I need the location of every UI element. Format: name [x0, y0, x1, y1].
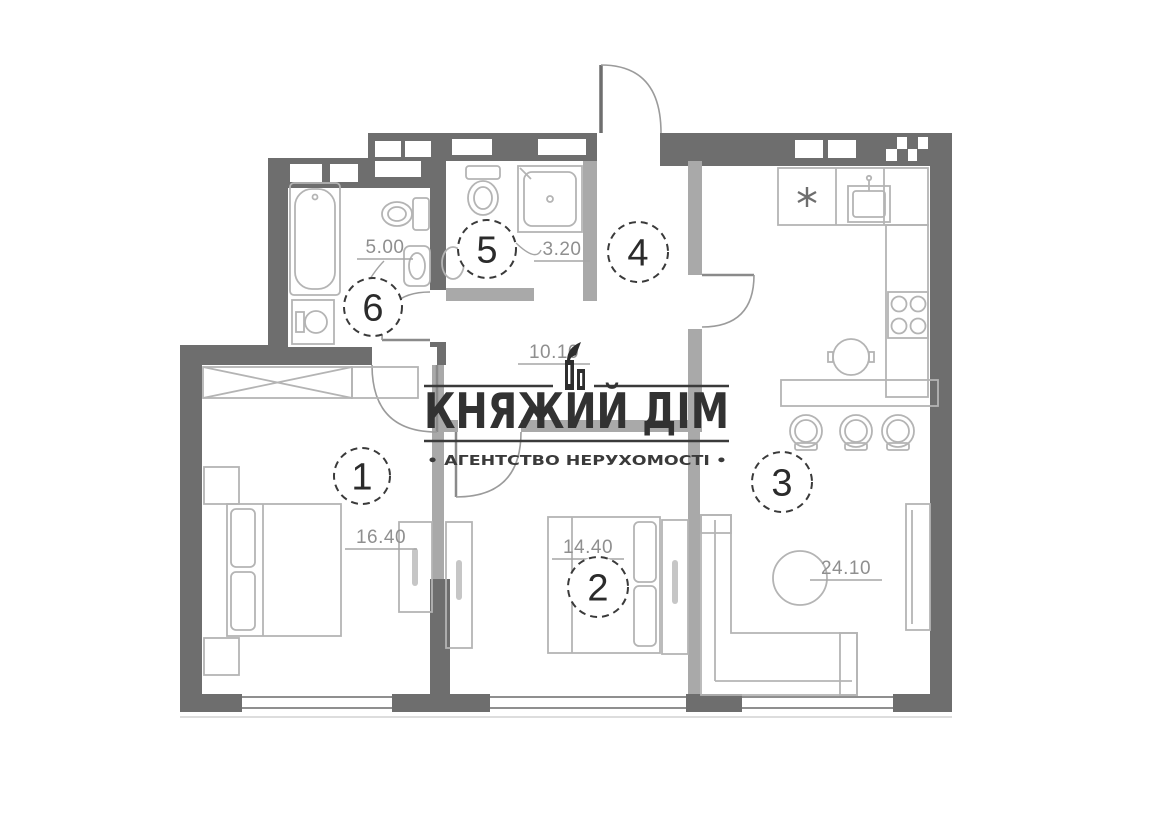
room-marker-2: 2	[568, 557, 628, 617]
room1-number: 1	[351, 457, 372, 499]
brand-name: КНЯЖИЙ ДІМ	[424, 381, 729, 440]
room-marker-3: 3	[752, 452, 812, 512]
room-marker-1: 1	[334, 448, 390, 504]
room-marker-5: 5	[458, 220, 516, 278]
agency-tagline: • АГЕНТСТВО НЕРУХОМОСТІ •	[427, 453, 727, 469]
room-marker-4: 4	[608, 222, 668, 282]
room-marker-6: 6	[344, 278, 402, 336]
floorplan-svg: 16.40 14.40 24.10 10.10 3.20 5.00 1 2 3	[0, 0, 1150, 819]
room3-number: 3	[771, 463, 792, 505]
room1-area-label: 16.40	[356, 527, 406, 548]
wall-hatch-block	[886, 137, 928, 161]
room2-area-label: 14.40	[563, 537, 613, 558]
room3-area-label: 24.10	[821, 558, 871, 579]
room6-area-label: 5.00	[366, 237, 405, 258]
room6-number: 6	[362, 288, 383, 330]
floorplan-image: 16.40 14.40 24.10 10.10 3.20 5.00 1 2 3	[0, 0, 1150, 819]
room5-number: 5	[476, 230, 497, 272]
room2-number: 2	[587, 568, 608, 610]
room5-area-label: 3.20	[543, 239, 582, 260]
room4-number: 4	[627, 233, 648, 275]
